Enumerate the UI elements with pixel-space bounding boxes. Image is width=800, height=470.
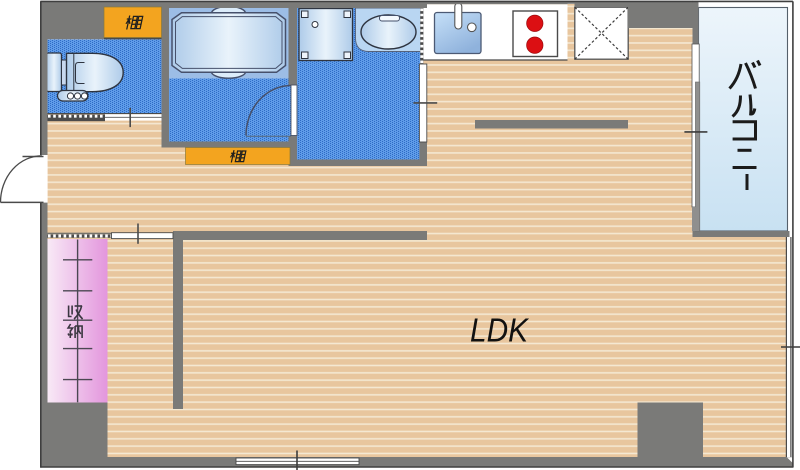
svg-text:LDK: LDK bbox=[470, 313, 529, 350]
